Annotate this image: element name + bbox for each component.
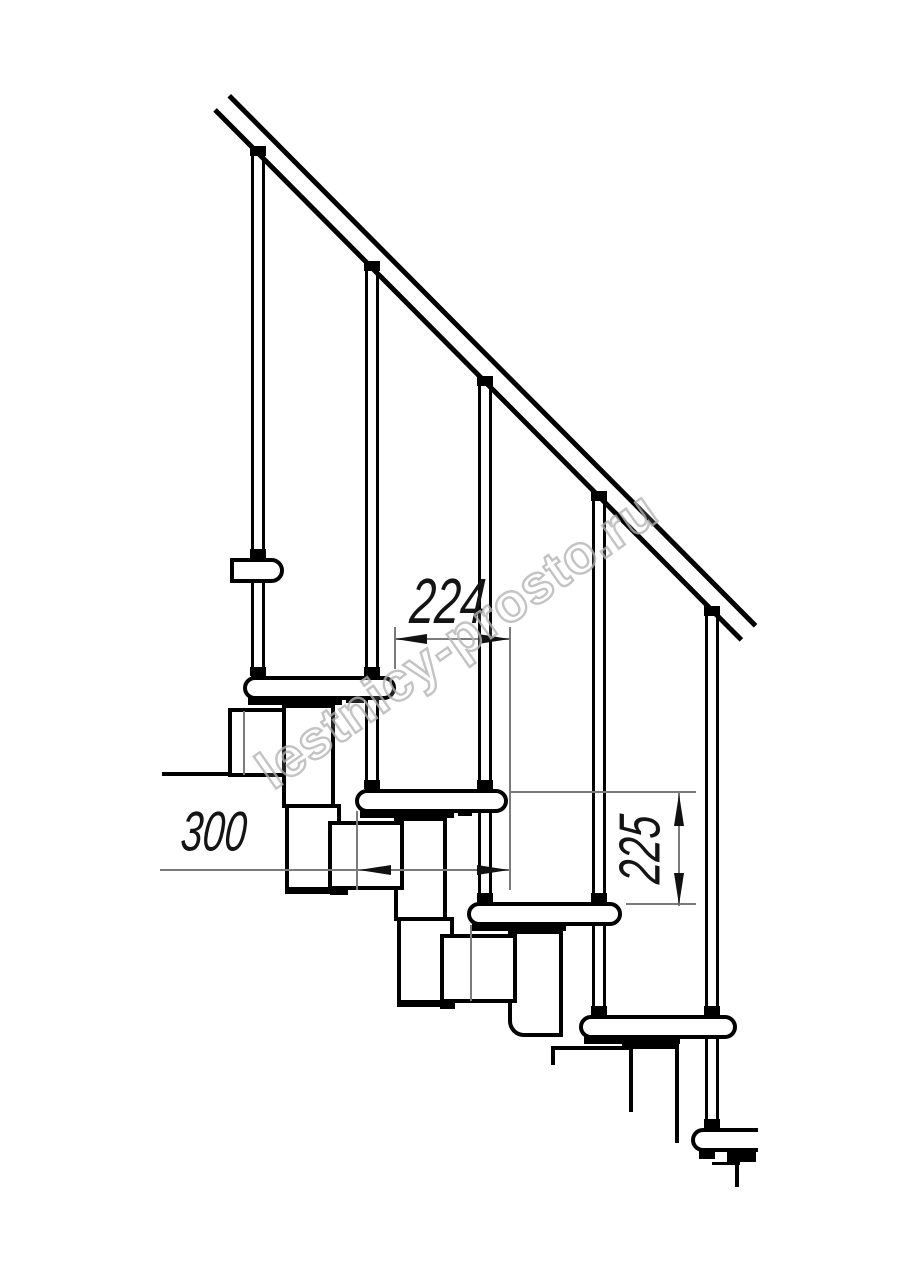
extension-line: [511, 791, 696, 793]
tread-mount: [699, 1149, 715, 1159]
extension-line: [626, 903, 696, 905]
tread-cap: [477, 893, 493, 902]
tread-mount-foot: [622, 1041, 678, 1049]
extension-line: [509, 627, 511, 890]
construction-line: [243, 711, 245, 775]
rail-bracket: [230, 558, 284, 583]
tread-cap: [591, 893, 607, 902]
dimension-label-300: 300: [179, 799, 250, 864]
arrowhead-left: [359, 865, 391, 875]
baluster-5: [705, 608, 719, 1134]
arrowhead-down: [674, 873, 684, 905]
module-front-1: [328, 821, 404, 890]
step-outline: [551, 1046, 555, 1065]
step-outline: [551, 1046, 633, 1050]
module-4-line: [675, 1043, 679, 1143]
staircase-drawing: 224 300 225 lestnicy-prosto.ru: [0, 0, 914, 1280]
tread-cap: [364, 780, 380, 789]
module-nub: [440, 999, 455, 1009]
tread-cap: [477, 780, 493, 789]
step-outline: [735, 1162, 739, 1187]
tread-mount-foot: [544, 925, 557, 932]
tread-mount-foot: [458, 810, 472, 816]
arrowhead-up: [674, 794, 684, 826]
chain-continuation-line: [162, 772, 232, 776]
module-nub: [330, 886, 348, 895]
rail-cap-5: [704, 606, 720, 616]
module-front-2: [440, 934, 517, 1003]
baluster-1: [251, 148, 265, 682]
tread-cap: [704, 1119, 720, 1128]
tread-cap: [250, 667, 266, 676]
tread-mount-foot: [727, 1149, 756, 1162]
dimension-label-225: 225: [607, 812, 674, 886]
module-4-line: [629, 1043, 633, 1112]
rail-cap-2: [364, 261, 380, 271]
tread-cap: [591, 1006, 607, 1015]
extension-line: [356, 811, 358, 890]
construction-line: [470, 925, 472, 1001]
rail-cap-1: [250, 146, 266, 156]
tread-cap: [704, 1006, 720, 1015]
tread-mount: [360, 810, 454, 818]
bracket-cap: [250, 549, 266, 558]
rail-cap-3: [477, 376, 493, 386]
arrowhead-right: [477, 865, 509, 875]
dimension-line-300: [160, 869, 511, 871]
